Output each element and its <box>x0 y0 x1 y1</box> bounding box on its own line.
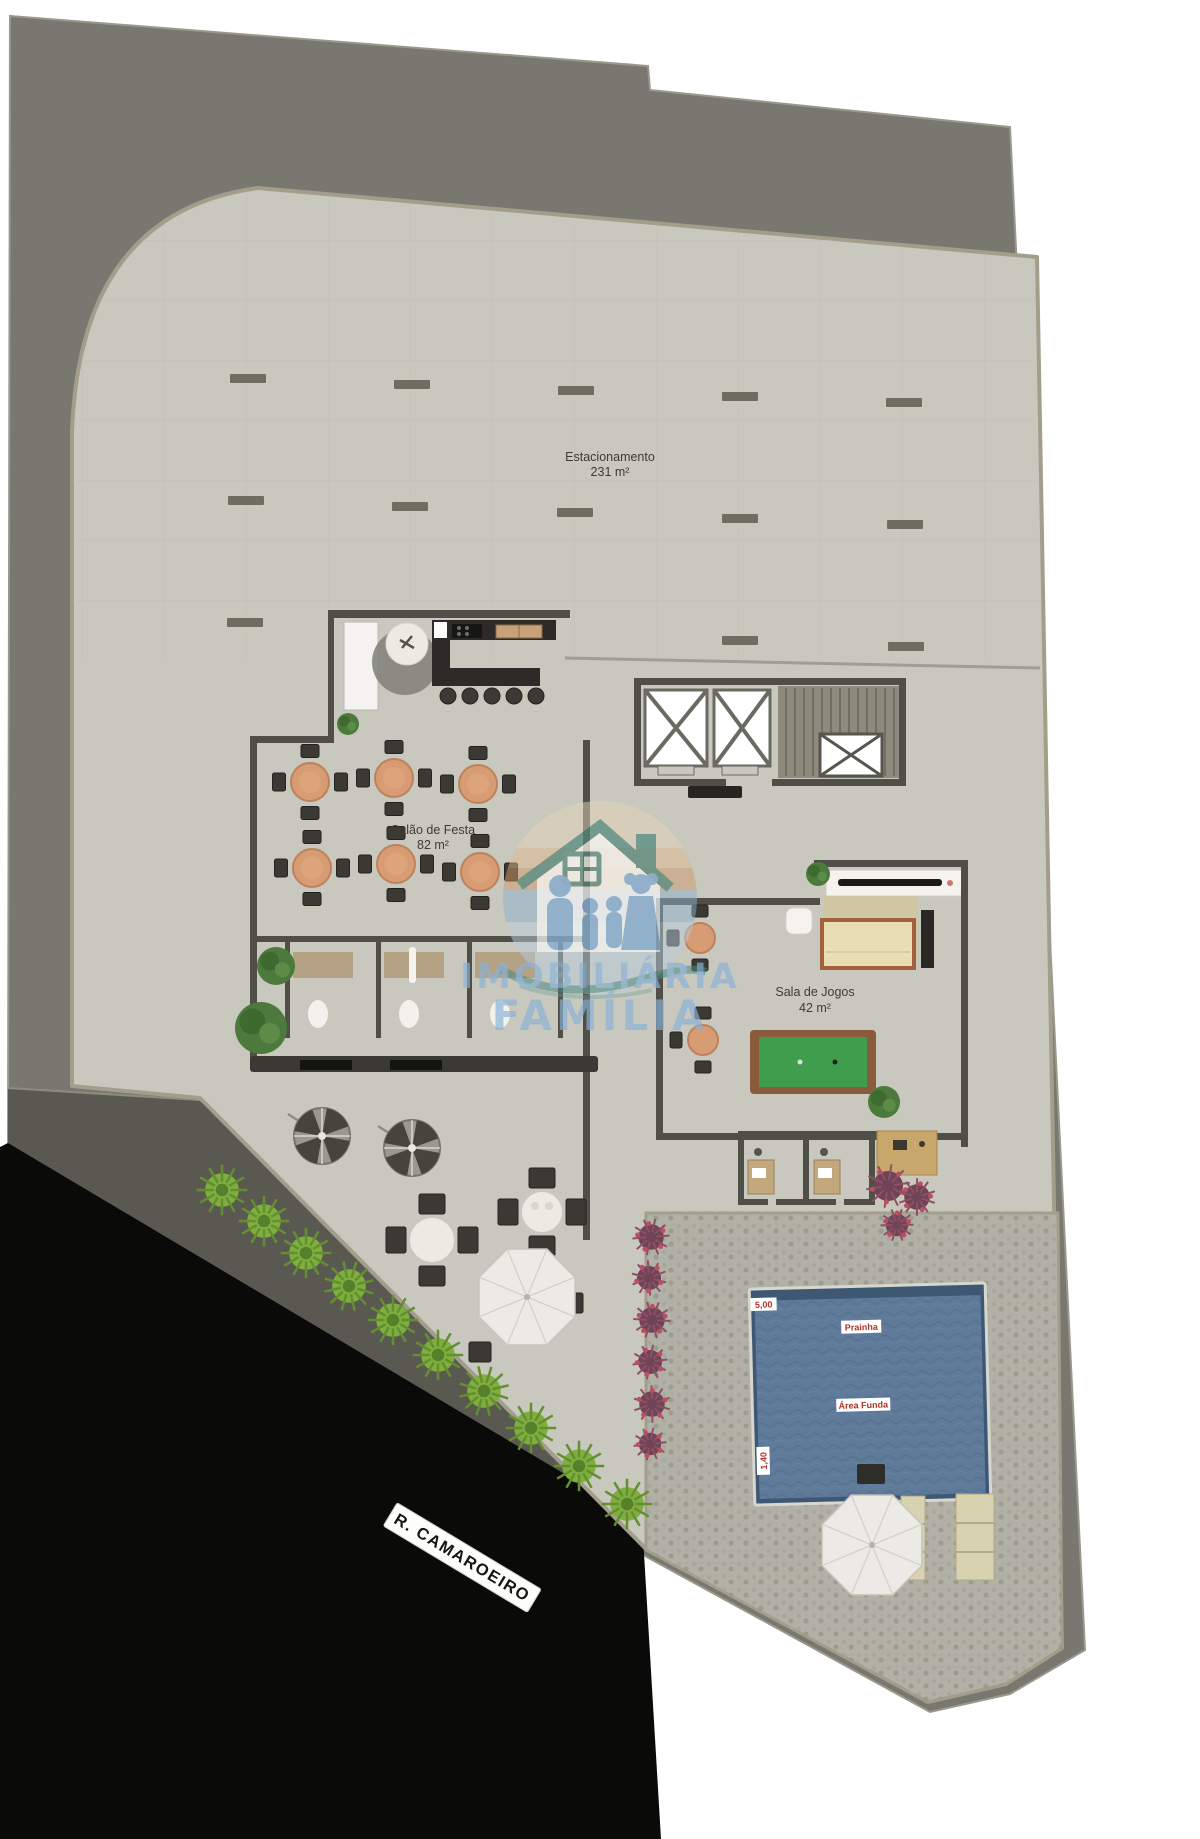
column-marker <box>722 514 758 523</box>
tree <box>257 947 295 985</box>
sun-lounger <box>956 1494 994 1580</box>
chair <box>301 745 319 758</box>
counter-white-box <box>434 622 447 638</box>
chair <box>357 769 370 787</box>
column-marker <box>888 642 924 651</box>
column-marker <box>228 496 264 505</box>
site-plan-canvas: Estacionamento 231 m² <box>0 0 1200 1839</box>
chair <box>385 741 403 754</box>
chair <box>469 1342 491 1362</box>
round-table <box>521 1191 563 1233</box>
chair <box>335 773 348 791</box>
toilet <box>308 1000 328 1028</box>
elevator-door <box>658 766 694 775</box>
column-marker <box>394 380 430 389</box>
pool-ladder <box>857 1464 885 1484</box>
shuffleboard <box>838 879 942 886</box>
chair <box>471 897 489 910</box>
side-table <box>786 908 812 934</box>
chair <box>695 1061 711 1073</box>
chair <box>273 773 286 791</box>
elevator-door <box>722 766 758 775</box>
billiards-felt <box>759 1037 867 1087</box>
bar-stool <box>462 688 478 704</box>
game-room-label: Sala de Jogos <box>775 985 854 999</box>
watermark-subtitle: FAMÍLIA <box>492 990 709 1040</box>
chair <box>303 893 321 906</box>
tv-panel <box>921 910 934 968</box>
shower-column <box>409 947 416 983</box>
kitchen-bar <box>432 668 540 686</box>
column-marker <box>230 374 266 383</box>
chair <box>275 859 288 877</box>
chair <box>359 855 372 873</box>
wood-cabinet <box>877 1131 937 1175</box>
chair <box>458 1227 478 1253</box>
chair <box>443 863 456 881</box>
chair <box>469 747 487 760</box>
chair <box>386 1227 406 1253</box>
column-marker <box>558 386 594 395</box>
chair <box>421 855 434 873</box>
chair <box>498 1199 518 1225</box>
sofa <box>822 920 914 968</box>
bar-stool <box>506 688 522 704</box>
wash-basin <box>754 1148 762 1156</box>
column-marker <box>722 636 758 645</box>
parking-floor-tiles <box>72 188 1044 660</box>
tree <box>868 1086 900 1118</box>
pool-depth-label: 1,40 <box>758 1452 768 1470</box>
vanity-counter <box>293 952 353 978</box>
pool-length-label: 5,00 <box>755 1300 773 1310</box>
chair <box>387 889 405 902</box>
chair <box>566 1199 586 1225</box>
pool-depth-chip: 1,40 <box>756 1447 770 1475</box>
chair <box>419 1266 445 1286</box>
parking-area-value: 231 m² <box>591 465 630 479</box>
bar-stool <box>528 688 544 704</box>
toilet <box>399 1000 419 1028</box>
chair <box>441 775 454 793</box>
round-table <box>409 1217 455 1263</box>
floor-plan-rendering: Estacionamento 231 m² <box>0 0 1200 1839</box>
column-marker <box>392 502 428 511</box>
tree <box>337 713 359 735</box>
bench <box>390 1060 442 1070</box>
chair <box>385 803 403 816</box>
chair <box>469 809 487 822</box>
chair <box>419 1194 445 1214</box>
bench <box>300 1060 352 1070</box>
column-marker <box>887 520 923 529</box>
pool-deep-label: Área Funda <box>838 1400 889 1411</box>
chair <box>303 831 321 844</box>
bar-stool <box>440 688 456 704</box>
column-marker <box>557 508 593 517</box>
column-marker <box>722 392 758 401</box>
parking-label: Estacionamento <box>565 450 655 464</box>
game-room-area-value: 42 m² <box>799 1001 831 1015</box>
lobby-bench <box>688 786 742 798</box>
chair <box>301 807 319 820</box>
column-marker <box>886 398 922 407</box>
pool-shallow-label: Prainha <box>845 1322 879 1333</box>
wash-basin <box>820 1148 828 1156</box>
tree <box>806 862 830 886</box>
chair <box>529 1168 555 1188</box>
chair <box>503 775 516 793</box>
tree <box>235 1002 287 1054</box>
chair <box>419 769 432 787</box>
column-marker <box>227 618 263 627</box>
bar-stool <box>484 688 500 704</box>
parasol-umbrella <box>479 1249 575 1345</box>
party-hall-label: Salão de Festa <box>391 823 475 837</box>
parasol-umbrella <box>822 1495 922 1595</box>
chair <box>337 859 350 877</box>
party-hall-area-value: 82 m² <box>417 838 449 852</box>
